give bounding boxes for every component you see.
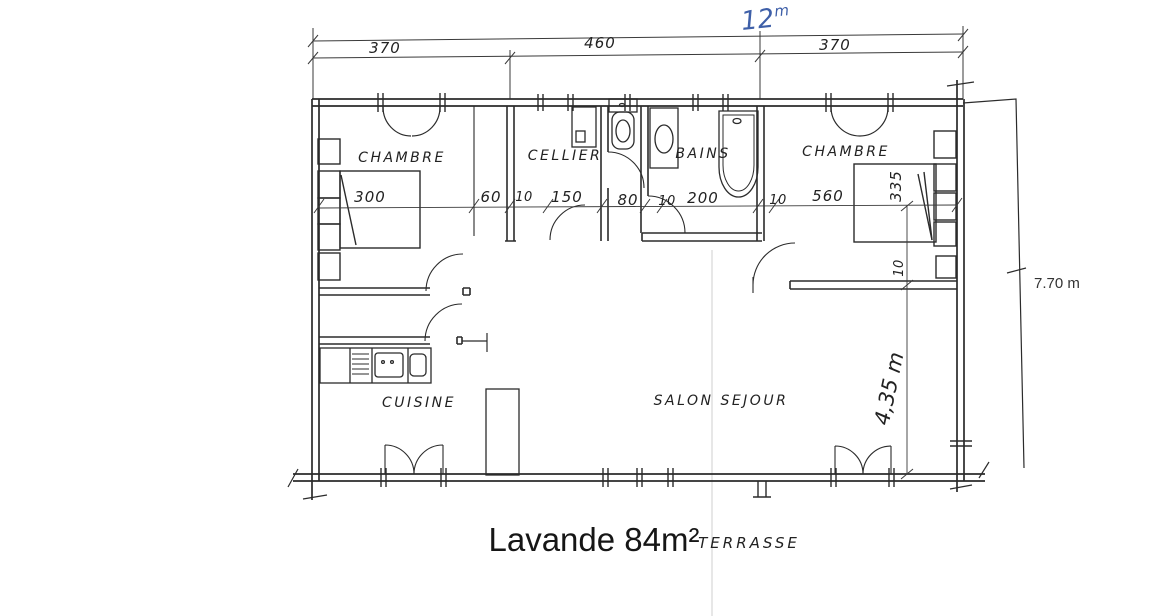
dim-10c: 10	[769, 193, 787, 208]
overall-height-note: 7.70 m	[1034, 275, 1080, 292]
label-terrasse: TERRASSE	[698, 534, 800, 552]
nightstand	[934, 131, 956, 158]
label-bains: BAINS	[675, 146, 730, 162]
bathtub-drain	[733, 119, 741, 124]
bed	[340, 171, 420, 248]
door-arc-wc	[608, 152, 644, 188]
wardrobe	[934, 222, 956, 246]
wall-chambre-cellier	[505, 106, 516, 241]
floor-plan-svg: 370 460 370 12m	[0, 0, 1151, 616]
washbasin-vanity	[650, 108, 678, 168]
windows	[383, 107, 888, 136]
dim-370-left: 370	[369, 39, 401, 57]
chimney-column	[486, 389, 519, 475]
dim-10a: 10	[515, 190, 533, 205]
furniture-cellier	[572, 107, 596, 147]
nightstand	[318, 253, 340, 280]
dim-300: 300	[354, 188, 386, 206]
dim-60: 60	[480, 188, 501, 206]
wall-hall	[642, 233, 762, 241]
label-cuisine: CUISINE	[382, 395, 456, 411]
wall-wc-bains	[641, 106, 648, 233]
wardrobe	[318, 198, 340, 224]
wardrobe	[318, 224, 340, 250]
nightstand	[318, 139, 340, 164]
wall-cellier-wc	[601, 106, 608, 241]
dim-370-right: 370	[819, 36, 851, 54]
caption: Lavande 84m² TERRASSE	[489, 521, 800, 558]
french-door-salon	[835, 446, 891, 474]
dim-560: 560	[812, 187, 844, 205]
dimension-right: 335 10 4,35 m 7.70 m	[870, 170, 1080, 479]
kitchen-sink	[375, 353, 403, 377]
window-left-chambre	[383, 107, 411, 136]
wall-cuisine-corridor	[319, 337, 462, 344]
interior-walls	[319, 106, 957, 352]
dimension-top: 370 460 370 12m	[308, 1, 968, 99]
door-arc-cellier	[550, 205, 585, 240]
wall-chambre-left-corridor	[319, 288, 470, 295]
dim-80: 80	[617, 191, 638, 209]
sink-drainer	[410, 354, 426, 376]
wardrobe	[934, 164, 956, 191]
floor-plan-document: 370 460 370 12m	[0, 0, 1151, 616]
label-chambre-left: CHAMBRE	[358, 150, 446, 166]
toilet-bowl	[612, 112, 634, 149]
wardrobe-open-door	[341, 175, 356, 245]
nightstand	[936, 256, 956, 278]
dim-10-vert: 10	[892, 259, 907, 277]
furniture-cuisine	[320, 348, 519, 475]
door-arc-cuisine	[425, 304, 462, 341]
door-arc-chambre-left	[426, 254, 463, 291]
room-labels: CHAMBRE CELLIER BAINS CHAMBRE CUISINE SA…	[358, 144, 890, 411]
plan-title: Lavande 84m²	[489, 521, 700, 558]
wall-chambre-right-salon	[790, 281, 957, 289]
french-door-cuisine	[385, 445, 443, 474]
wardrobe	[934, 193, 956, 220]
window-right-chambre	[831, 107, 860, 136]
outer-walls	[288, 80, 1026, 500]
label-chambre-right: CHAMBRE	[802, 144, 890, 160]
door-arc-chambre-right	[753, 243, 795, 293]
wardrobe	[318, 171, 340, 198]
dim-200: 200	[687, 189, 719, 207]
washbasin	[655, 125, 673, 153]
dimension-middle: 300 60 10 150 80 10 200 10 560	[314, 187, 962, 213]
dim-10b: 10	[658, 194, 676, 209]
dim-150: 150	[551, 188, 583, 206]
label-cellier: CELLIER	[528, 148, 602, 164]
dim-460: 460	[584, 34, 616, 52]
overall-width-label: 12m	[739, 1, 791, 37]
label-salon: SALON SEJOUR	[654, 393, 789, 409]
stove	[352, 354, 369, 374]
dim-435m: 4,35 m	[870, 350, 909, 427]
dim-335: 335	[887, 170, 905, 202]
